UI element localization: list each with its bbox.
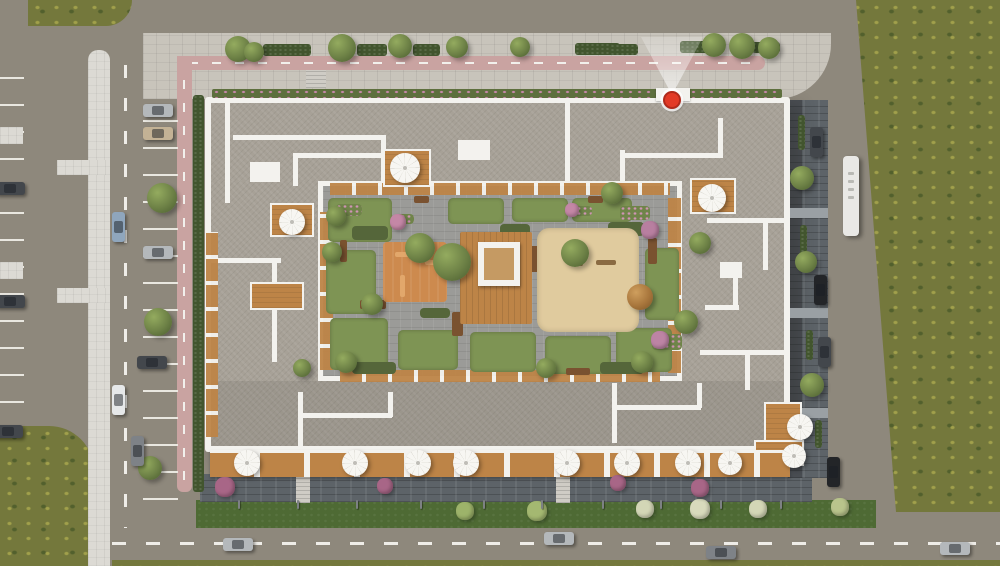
- car-glass: [812, 136, 821, 148]
- planting-bed: [398, 330, 458, 370]
- umbrella-pole: [353, 461, 357, 465]
- hedge: [263, 44, 311, 56]
- car-glass: [715, 548, 727, 557]
- parking-stalls-roadside: [143, 99, 178, 500]
- bush: [527, 501, 547, 521]
- car: [544, 532, 574, 545]
- roof-parapet-line: [298, 392, 303, 446]
- hedge: [815, 420, 822, 448]
- aerial-site-plan: [0, 0, 1000, 566]
- road-center-dash-west: [124, 45, 127, 540]
- roof-parapet-line: [272, 262, 277, 362]
- car-glass: [4, 297, 16, 306]
- grass-verge-south: [112, 560, 1000, 566]
- tree: [446, 36, 468, 58]
- bush: [636, 500, 654, 518]
- pavilion-roof: [484, 248, 514, 280]
- lamp-post: [297, 500, 299, 509]
- tree: [674, 310, 698, 334]
- umbrella: [405, 450, 431, 476]
- car-glass: [820, 346, 829, 358]
- car: [0, 295, 25, 308]
- meadow-southwest: [0, 426, 94, 566]
- roof-parapet-line: [763, 222, 768, 270]
- lamp-post: [541, 500, 543, 509]
- tree: [388, 34, 412, 58]
- umbrella-pole: [792, 454, 796, 458]
- entrance-steps: [556, 477, 570, 503]
- tree: [795, 251, 817, 273]
- roof-parapet-line: [250, 162, 280, 182]
- hedge: [357, 44, 387, 56]
- umbrella-pole: [710, 196, 714, 200]
- bush: [831, 498, 849, 516]
- wood-planter: [414, 196, 429, 203]
- car: [137, 356, 167, 369]
- roof-parapet-line: [733, 278, 738, 308]
- roof-terrace-deck: [250, 282, 304, 310]
- bush: [691, 479, 709, 497]
- tree: [328, 34, 356, 62]
- bush: [215, 477, 235, 497]
- umbrella: [234, 450, 260, 476]
- flower-bed: [620, 206, 650, 220]
- roof-parapet-line: [707, 218, 785, 223]
- umbrella-pole: [416, 461, 420, 465]
- lamp-post: [602, 500, 604, 509]
- tree: [800, 373, 824, 397]
- shrub-bed: [352, 362, 396, 374]
- umbrella-pole: [290, 220, 294, 224]
- roof-parapet-line: [745, 355, 750, 390]
- tree: [433, 243, 471, 281]
- bush: [641, 221, 659, 239]
- bus-roof-hatch: [848, 196, 854, 199]
- car: [143, 104, 173, 117]
- car-glass: [133, 445, 142, 457]
- car-glass: [152, 248, 164, 257]
- car: [810, 127, 823, 157]
- umbrella-pole: [403, 166, 407, 170]
- car: [706, 546, 736, 559]
- roof-parapet-line: [616, 405, 701, 410]
- sand-pit: [537, 228, 639, 332]
- umbrella: [675, 450, 701, 476]
- bus-roof-hatch: [848, 172, 854, 175]
- wood-planter: [588, 196, 603, 203]
- car: [818, 337, 831, 367]
- walkway-patch: [0, 127, 23, 144]
- umbrella-pole: [245, 461, 249, 465]
- terrace-row-south: [210, 450, 790, 477]
- car-glass: [114, 221, 123, 233]
- autumn-tree: [627, 284, 653, 310]
- roof-parapet-line: [705, 305, 739, 310]
- bush: [565, 203, 579, 217]
- umbrella-pole: [625, 461, 629, 465]
- flower-strip: [212, 89, 782, 98]
- umbrella-pole: [565, 461, 569, 465]
- tree: [729, 33, 755, 59]
- roof-parapet-line: [302, 413, 392, 418]
- hedge: [193, 95, 204, 492]
- planting-bed: [470, 332, 536, 372]
- roof-parapet-line: [697, 383, 702, 408]
- play-equipment: [400, 275, 405, 297]
- umbrella: [718, 451, 742, 475]
- balcony-row: [206, 232, 218, 437]
- car-glass: [152, 129, 164, 138]
- lamp-post: [483, 500, 485, 509]
- umbrella-pole: [464, 461, 468, 465]
- roof-parapet-line: [458, 140, 490, 160]
- lamp-post: [420, 500, 422, 509]
- hedge: [413, 44, 440, 56]
- bus: [843, 156, 859, 236]
- bush: [456, 502, 474, 520]
- car-glass: [553, 534, 565, 543]
- bush: [610, 475, 626, 491]
- hedge: [806, 330, 813, 360]
- bush: [377, 478, 393, 494]
- roof-parapet-line: [718, 118, 723, 158]
- car: [827, 457, 840, 487]
- lamp-post: [660, 500, 662, 509]
- lamp-post: [720, 500, 722, 509]
- wood-planter: [648, 238, 657, 264]
- car-glass: [232, 540, 244, 549]
- paver-band: [790, 208, 828, 218]
- location-marker[interactable]: [663, 91, 681, 109]
- tree: [244, 42, 264, 62]
- car: [143, 246, 173, 259]
- pedestrian-walkway-west: [88, 50, 110, 566]
- shrub-bed: [352, 226, 388, 240]
- bush: [390, 214, 406, 230]
- umbrella: [614, 450, 640, 476]
- bush: [651, 331, 669, 349]
- roof-parapet-line: [225, 103, 230, 203]
- car-glass: [949, 544, 961, 553]
- umbrella: [554, 450, 580, 476]
- roof-parapet-line: [388, 392, 393, 417]
- car-glass: [4, 184, 16, 193]
- car: [131, 436, 144, 466]
- car-glass: [152, 106, 164, 115]
- tree: [702, 33, 726, 57]
- tree: [335, 351, 357, 373]
- car-glass: [816, 284, 825, 296]
- paver-band: [790, 308, 828, 318]
- roof-parapet-line: [233, 135, 386, 140]
- hedge: [798, 115, 805, 150]
- walkway-patch: [57, 288, 110, 303]
- umbrella: [782, 444, 806, 468]
- umbrella-pole: [686, 461, 690, 465]
- roof-parapet-line: [293, 153, 386, 158]
- shrub-bed: [420, 308, 450, 318]
- bus-roof-hatch: [848, 180, 854, 183]
- tree: [536, 358, 556, 378]
- bike-lane-dash: [183, 74, 185, 480]
- umbrella: [279, 209, 305, 235]
- tree: [326, 206, 346, 226]
- tree: [601, 182, 623, 204]
- roof-parapet-line: [211, 258, 281, 263]
- car: [814, 275, 827, 305]
- bus-roof-hatch: [848, 188, 854, 191]
- roof-parapet-line: [625, 153, 720, 158]
- bush: [690, 499, 710, 519]
- tree: [689, 232, 711, 254]
- roof-parapet-line: [612, 383, 617, 443]
- car-glass: [2, 427, 14, 436]
- car: [223, 538, 253, 551]
- car: [0, 425, 23, 438]
- umbrella-pole: [798, 425, 802, 429]
- car: [0, 182, 25, 195]
- car: [112, 385, 125, 415]
- lamp-post: [238, 500, 240, 509]
- tree: [293, 359, 311, 377]
- umbrella: [698, 184, 726, 212]
- car: [940, 542, 970, 555]
- umbrella: [390, 153, 420, 183]
- roof-parapet-line: [700, 350, 784, 355]
- tree: [631, 351, 653, 373]
- car-glass: [829, 466, 838, 478]
- roof-parapet-line: [565, 103, 570, 185]
- wood-planter: [566, 368, 590, 375]
- tree: [405, 233, 435, 263]
- sand-equipment: [596, 260, 616, 265]
- hedge: [610, 44, 638, 55]
- planting-bed: [512, 198, 568, 222]
- umbrella: [453, 450, 479, 476]
- car: [112, 212, 125, 242]
- tree: [790, 166, 814, 190]
- car: [143, 127, 173, 140]
- bike-lane-vertical: [177, 60, 192, 492]
- umbrella-pole: [728, 461, 732, 465]
- umbrella: [787, 414, 813, 440]
- tree: [144, 308, 172, 336]
- car-glass: [114, 394, 123, 406]
- tree: [758, 37, 780, 59]
- tree: [322, 242, 342, 262]
- tree: [361, 293, 383, 315]
- car-glass: [146, 358, 158, 367]
- tree: [510, 37, 530, 57]
- tree: [147, 183, 177, 213]
- paved-promenade-south: [200, 474, 812, 502]
- parking-stalls-west: [0, 70, 24, 430]
- meadow-east: [848, 0, 1000, 512]
- umbrella: [342, 450, 368, 476]
- grass-corner-northwest: [28, 0, 132, 26]
- roof-parapet-line: [293, 153, 298, 186]
- road-north: [0, 0, 1000, 34]
- lamp-post: [356, 500, 358, 509]
- walkway-patch: [57, 160, 110, 175]
- entrance-steps: [306, 70, 326, 88]
- bush: [749, 500, 767, 518]
- walkway-patch: [0, 262, 23, 279]
- roof-parapet-line: [720, 262, 742, 278]
- planting-bed: [448, 198, 504, 224]
- lamp-post: [780, 500, 782, 509]
- tree: [561, 239, 589, 267]
